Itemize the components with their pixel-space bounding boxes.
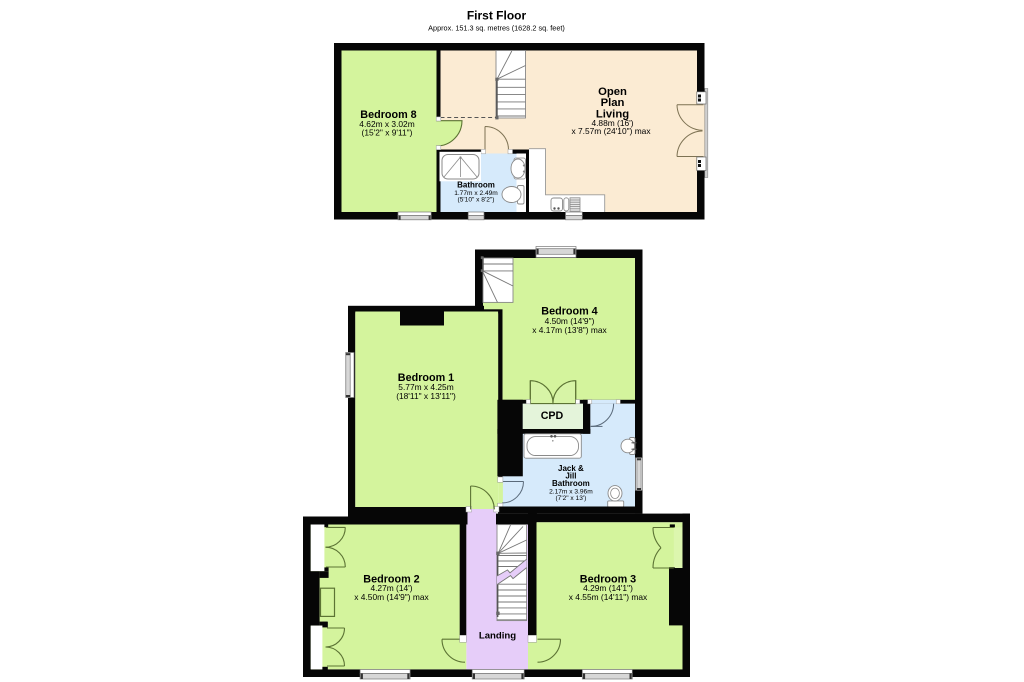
svg-text:x 4.50m (14'9") max: x 4.50m (14'9") max	[354, 592, 429, 602]
svg-text:Landing: Landing	[479, 631, 516, 642]
svg-text:CPD: CPD	[541, 410, 564, 422]
svg-text:Open: Open	[598, 86, 627, 98]
svg-text:Bathroom: Bathroom	[552, 479, 590, 488]
svg-text:First Floor: First Floor	[467, 9, 527, 23]
svg-text:Plan: Plan	[601, 97, 625, 109]
svg-text:x 7.57m (24'10") max: x 7.57m (24'10") max	[571, 126, 651, 136]
svg-text:Bathroom: Bathroom	[457, 181, 495, 190]
svg-text:(15'2" x 9'11"): (15'2" x 9'11")	[362, 128, 413, 138]
svg-text:Approx. 151.3 sq. metres (1628: Approx. 151.3 sq. metres (1628.2 sq. fee…	[428, 24, 565, 33]
svg-text:x 4.17m (13'8") max: x 4.17m (13'8") max	[532, 325, 607, 335]
svg-text:(18'11" x 13'11"): (18'11" x 13'11")	[396, 391, 456, 401]
svg-text:x 4.55m (14'11") max: x 4.55m (14'11") max	[569, 592, 648, 602]
svg-text:(7'2" x 13'): (7'2" x 13')	[555, 495, 586, 502]
svg-text:(5'10" x 8'2"): (5'10" x 8'2")	[458, 197, 495, 204]
